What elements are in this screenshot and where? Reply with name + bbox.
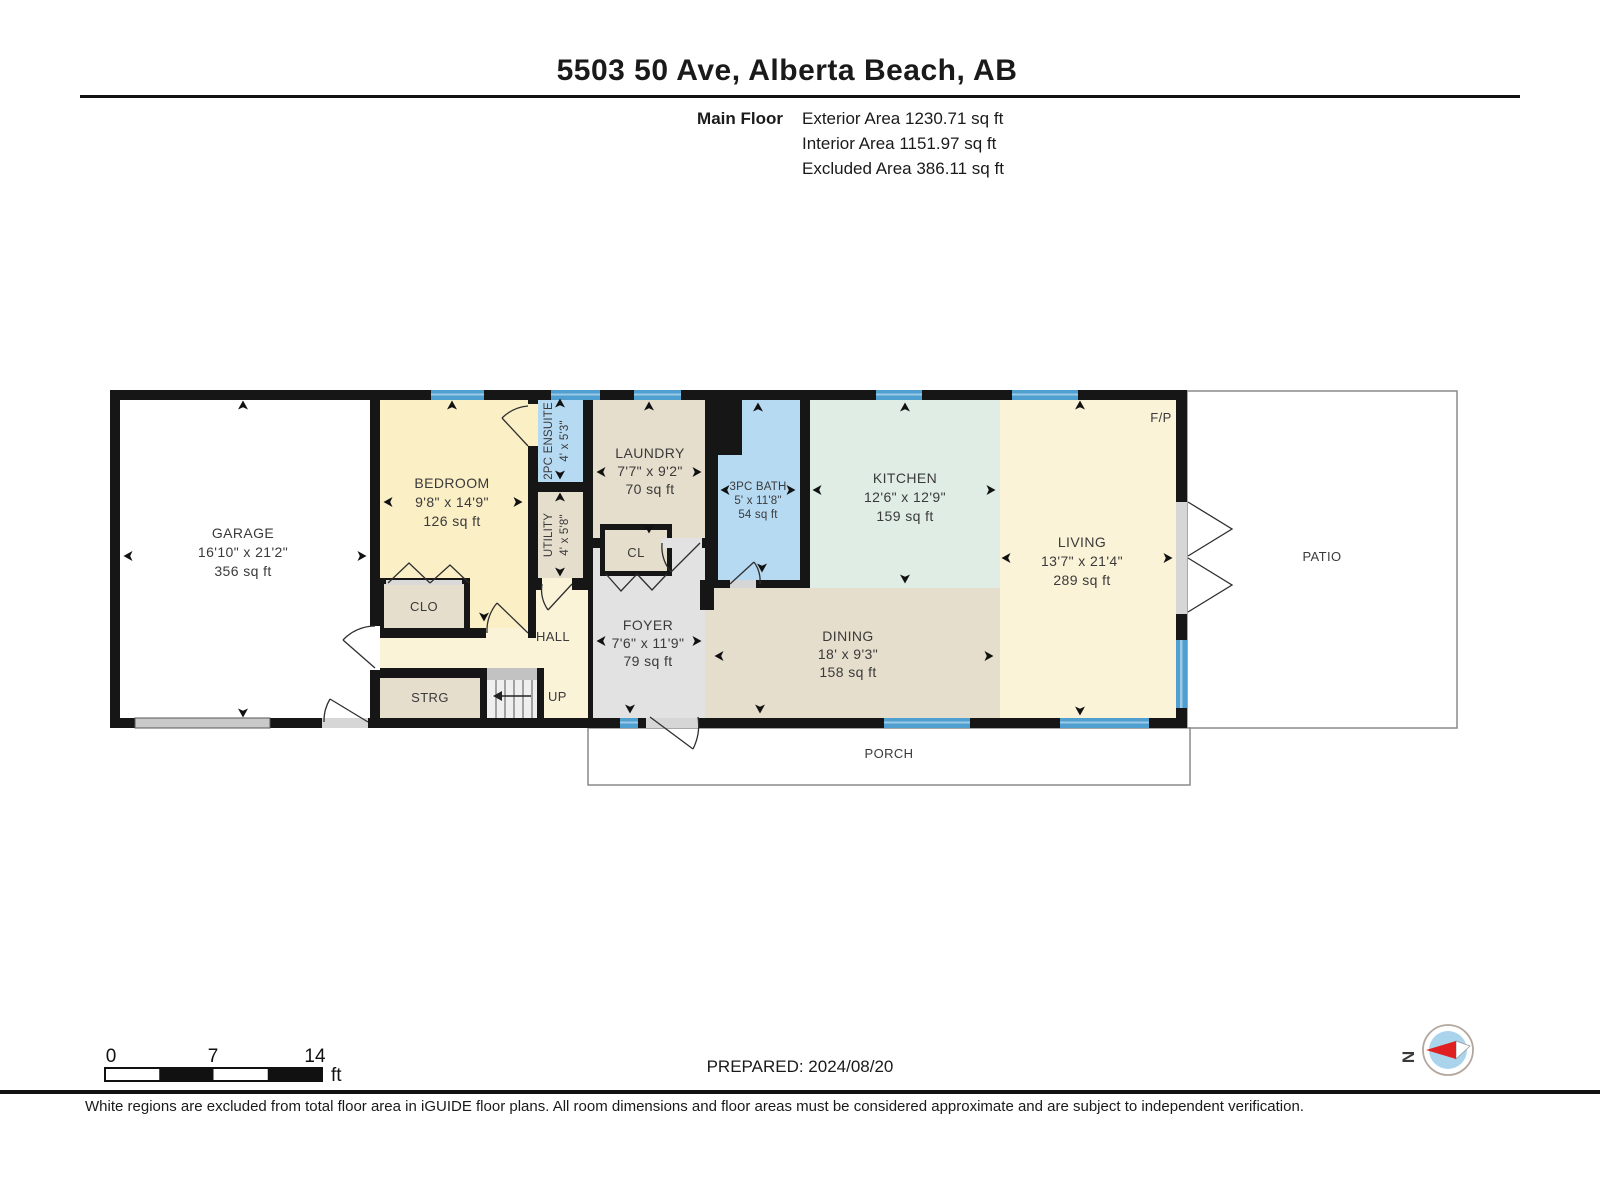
wall-stub	[700, 580, 714, 610]
svg-text:9'8" x 14'9": 9'8" x 14'9"	[415, 494, 489, 510]
svg-text:79 sq ft: 79 sq ft	[623, 653, 672, 669]
patio-area: PATIO	[1187, 391, 1457, 728]
room-laundry: LAUNDRY 7'7" x 9'2" 70 sq ft	[593, 400, 705, 538]
svg-text:12'6" x 12'9": 12'6" x 12'9"	[864, 489, 946, 505]
svg-text:54 sq ft: 54 sq ft	[738, 509, 778, 521]
room-garage: GARAGE 16'10" x 21'2" 356 sq ft	[120, 400, 370, 718]
svg-text:4' x 5'8": 4' x 5'8"	[559, 514, 571, 556]
footer-divider	[0, 1090, 1600, 1094]
fireplace-label: F/P	[1150, 410, 1171, 425]
closet-clo: CLO	[378, 578, 470, 635]
svg-text:126 sq ft: 126 sq ft	[423, 513, 480, 529]
bedroom-label: BEDROOM	[414, 475, 489, 491]
svg-text:158 sq ft: 158 sq ft	[819, 664, 876, 680]
room-dining: DINING 18' x 9'3" 158 sq ft	[705, 588, 1000, 718]
svg-text:7'6" x 11'9": 7'6" x 11'9"	[612, 635, 685, 651]
clo-label: CLO	[410, 599, 438, 614]
room-ensuite: 2PC ENSUITE 4' x 5'3"	[538, 400, 583, 482]
cl-label: CL	[627, 545, 644, 560]
garage-door	[135, 718, 270, 728]
svg-text:13'7" x 21'4": 13'7" x 21'4"	[1041, 553, 1123, 569]
svg-text:5' x 11'8": 5' x 11'8"	[734, 495, 781, 507]
porch-area: PORCH	[588, 728, 1190, 785]
up-label: UP	[548, 689, 567, 704]
svg-text:70 sq ft: 70 sq ft	[625, 481, 674, 497]
svg-text:356 sq ft: 356 sq ft	[214, 563, 271, 579]
hall-label: HALL	[536, 629, 570, 644]
laundry-label: LAUNDRY	[615, 445, 685, 461]
disclaimer-text: White regions are excluded from total fl…	[85, 1098, 1485, 1115]
room-kitchen: KITCHEN 12'6" x 12'9" 159 sq ft	[810, 400, 1000, 588]
porch-label: PORCH	[865, 746, 914, 761]
svg-text:7'7" x 9'2": 7'7" x 9'2"	[617, 463, 683, 479]
bath-label: 3PC BATH	[730, 481, 787, 493]
room-strg: STRG	[375, 668, 480, 718]
svg-text:4' x 5'3": 4' x 5'3"	[559, 420, 571, 462]
patio-door	[1176, 502, 1187, 614]
dining-label: DINING	[822, 628, 873, 644]
foyer-label: FOYER	[623, 617, 673, 633]
patio-label: PATIO	[1302, 549, 1341, 564]
strg-label: STRG	[411, 690, 449, 705]
utility-label: UTILITY	[543, 513, 555, 557]
floor-plan: PATIO PORCH GARAGE 16'10" x 21'2" 356 sq…	[0, 0, 1600, 1200]
closet-cl: CL	[600, 524, 672, 576]
prepared-date: PREPARED: 2024/08/20	[0, 1057, 1600, 1077]
living-label: LIVING	[1058, 534, 1106, 550]
ensuite-label: 2PC ENSUITE	[543, 402, 555, 480]
room-utility: UTILITY 4' x 5'8"	[538, 492, 583, 578]
svg-text:159 sq ft: 159 sq ft	[876, 508, 933, 524]
garage-label: GARAGE	[212, 525, 274, 541]
room-living: LIVING 13'7" x 21'4" 289 sq ft F/P	[1000, 400, 1176, 718]
svg-text:289 sq ft: 289 sq ft	[1053, 572, 1110, 588]
svg-text:16'10" x 21'2": 16'10" x 21'2"	[198, 544, 288, 560]
kitchen-label: KITCHEN	[873, 470, 937, 486]
svg-text:18' x 9'3": 18' x 9'3"	[818, 646, 878, 662]
